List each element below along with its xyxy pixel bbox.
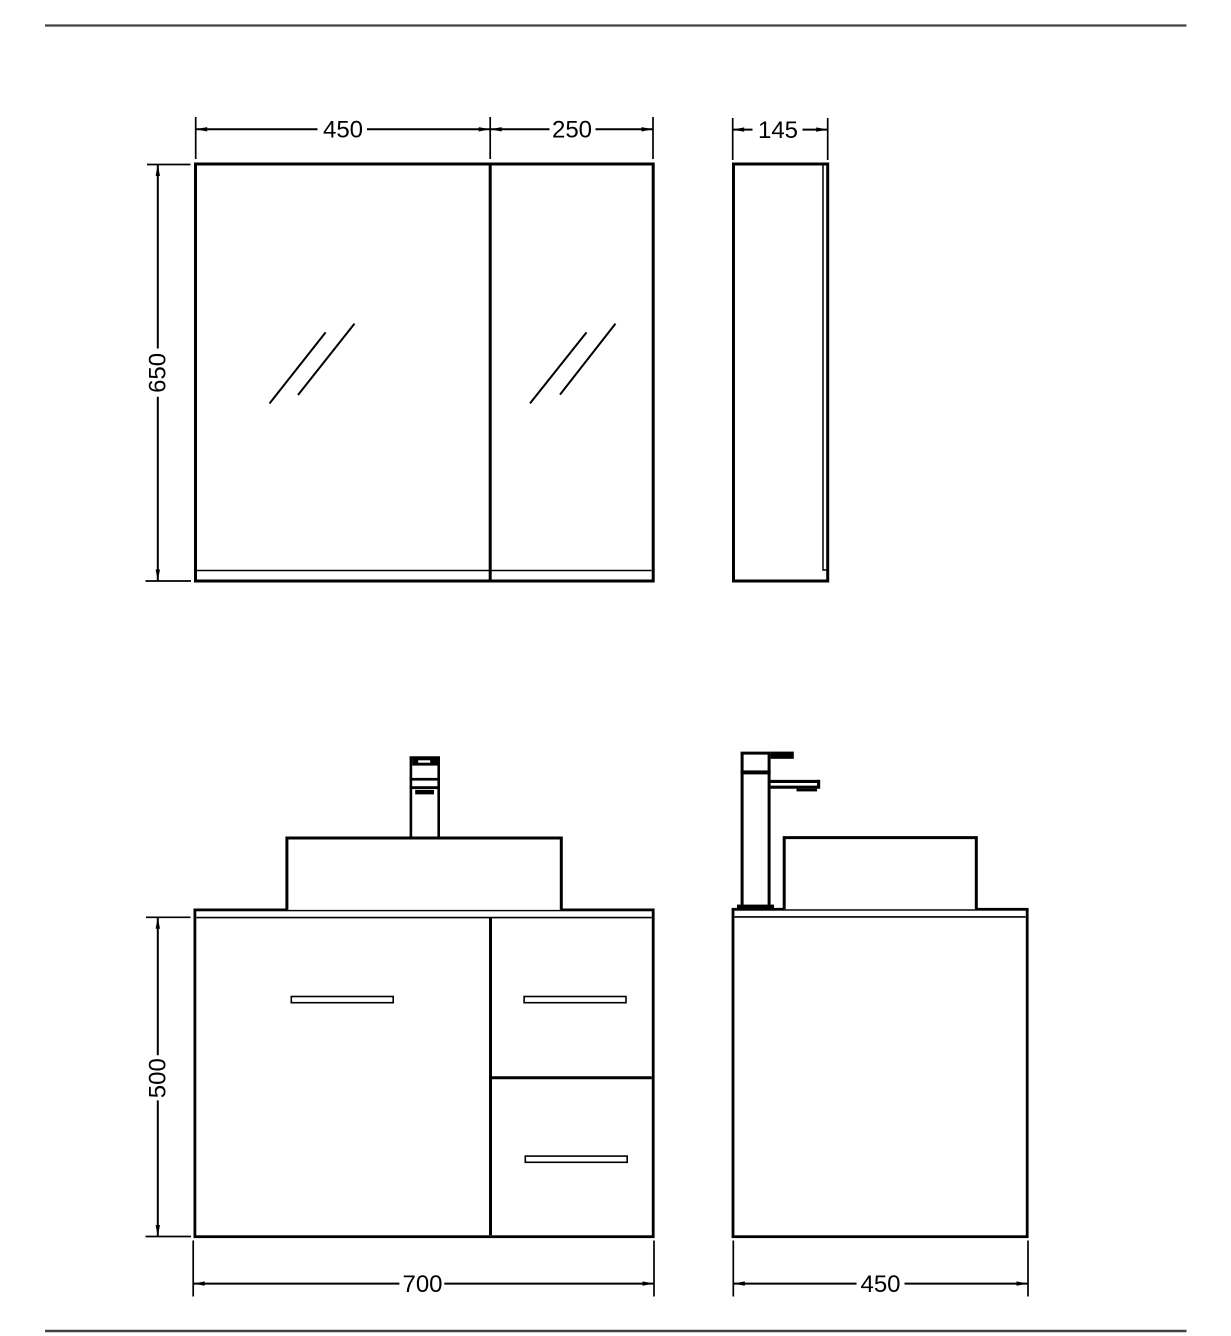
svg-text:700: 700	[402, 1271, 442, 1298]
svg-text:450: 450	[860, 1271, 900, 1298]
svg-text:450: 450	[323, 117, 363, 144]
svg-text:650: 650	[145, 353, 172, 393]
svg-text:500: 500	[145, 1058, 172, 1098]
svg-text:145: 145	[758, 117, 798, 144]
svg-text:250: 250	[552, 117, 592, 144]
